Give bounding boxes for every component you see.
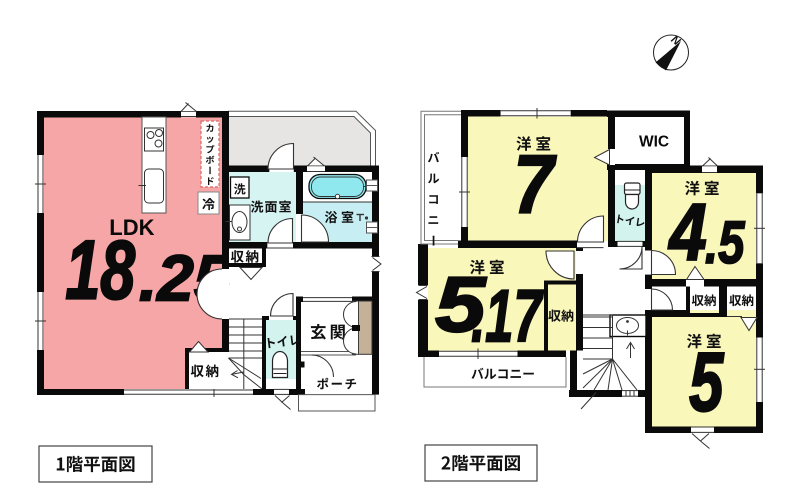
svg-text:18: 18	[65, 223, 135, 317]
svg-text:7: 7	[514, 139, 558, 231]
svg-text:.5: .5	[705, 210, 745, 277]
svg-text:5: 5	[689, 334, 724, 429]
svg-text:WIC: WIC	[639, 134, 669, 151]
svg-text:.17: .17	[471, 276, 544, 357]
